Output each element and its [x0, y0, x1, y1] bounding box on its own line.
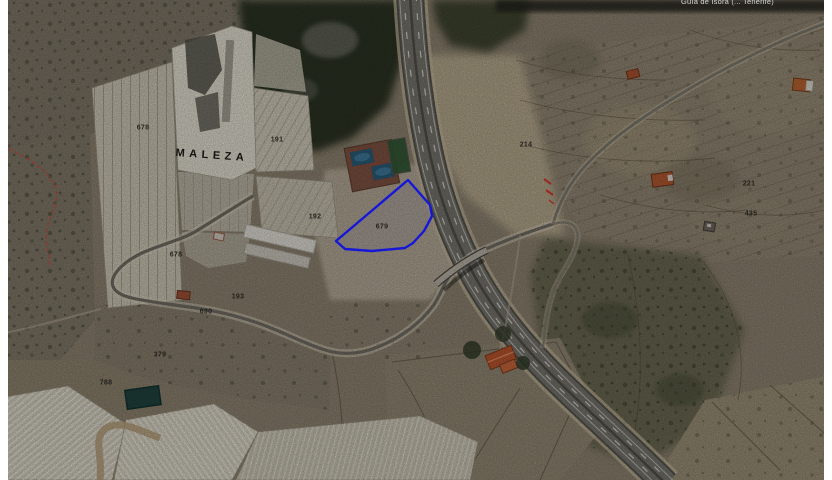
map-viewport[interactable]: 678 191 192 679 678 193 690 379 788 214 … — [0, 0, 832, 480]
map-screenshot: 678 191 192 679 678 193 690 379 788 214 … — [0, 0, 832, 480]
letterbox-right — [824, 0, 832, 480]
aerial-imagery-canvas[interactable] — [0, 0, 832, 480]
map-attribution: Guía de Isora (... Tenerife) — [681, 0, 774, 6]
letterbox-left — [0, 0, 8, 480]
